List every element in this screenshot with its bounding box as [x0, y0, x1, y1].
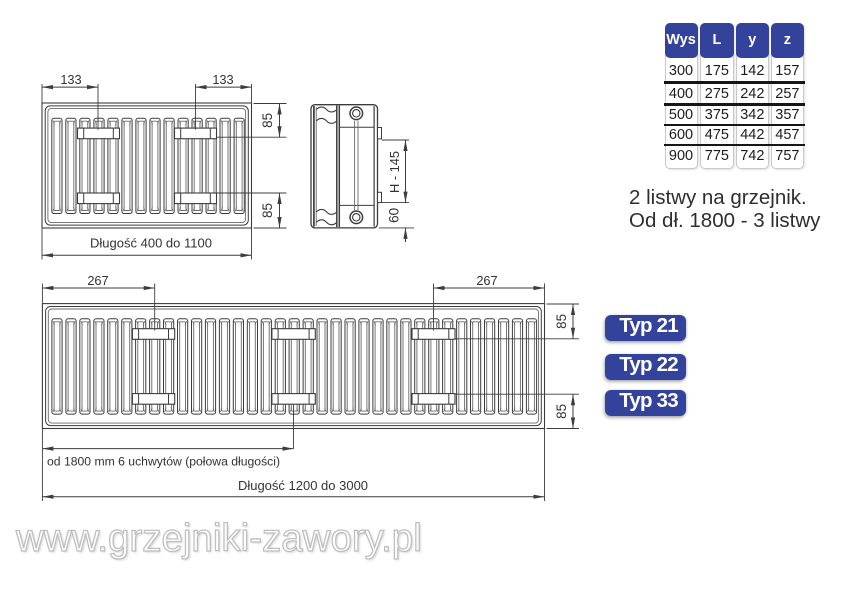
svg-text:85: 85 [260, 203, 275, 218]
svg-text:85: 85 [554, 404, 569, 419]
svg-text:H - 145: H - 145 [387, 151, 402, 193]
svg-text:267: 267 [87, 273, 108, 288]
svg-text:Długość 400 do 1100: Długość 400 do 1100 [90, 236, 212, 251]
svg-text:267: 267 [476, 273, 497, 288]
svg-text:60: 60 [387, 208, 402, 223]
svg-text:133: 133 [60, 72, 81, 87]
svg-text:Długość 1200 do 3000: Długość 1200 do 3000 [238, 478, 368, 493]
svg-text:od 1800 mm 6 uchwytów (połowa: od 1800 mm 6 uchwytów (połowa długości) [47, 455, 280, 469]
svg-text:85: 85 [260, 113, 275, 128]
svg-text:133: 133 [212, 72, 233, 87]
svg-text:85: 85 [554, 314, 569, 329]
